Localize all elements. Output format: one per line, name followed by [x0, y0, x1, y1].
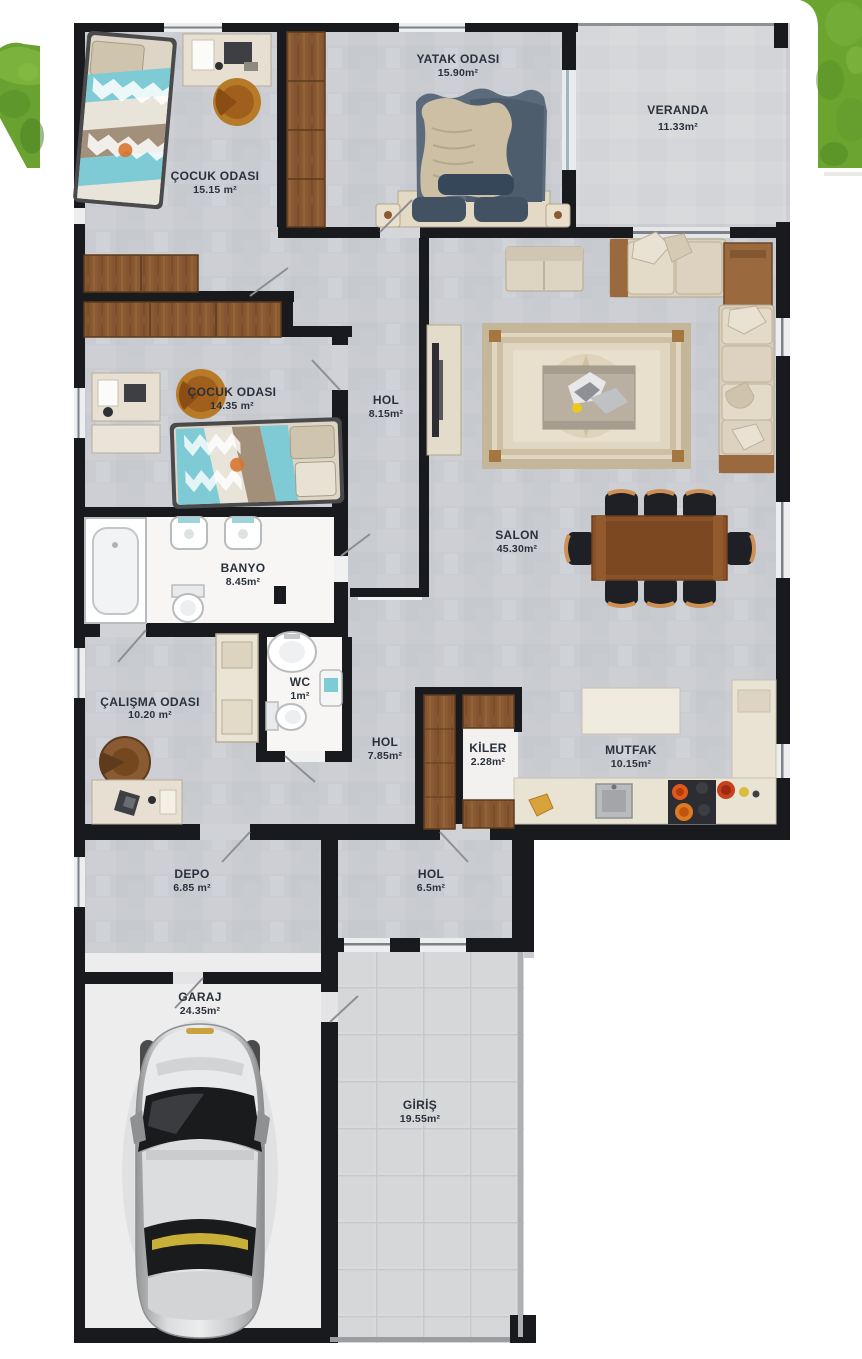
svg-text:HOL: HOL: [372, 735, 398, 749]
svg-text:ÇOCUK ODASI: ÇOCUK ODASI: [171, 169, 260, 183]
svg-text:HOL: HOL: [418, 867, 444, 881]
svg-text:WC: WC: [290, 675, 311, 689]
svg-text:6.5m²: 6.5m²: [417, 882, 446, 894]
svg-text:SALON: SALON: [495, 528, 539, 542]
svg-text:14.35 m²: 14.35 m²: [210, 400, 254, 412]
svg-text:DEPO: DEPO: [174, 867, 209, 881]
svg-text:15.90m²: 15.90m²: [438, 67, 479, 79]
svg-text:10.20 m²: 10.20 m²: [128, 709, 172, 721]
svg-text:KİLER: KİLER: [469, 740, 507, 755]
svg-text:15.15 m²: 15.15 m²: [193, 184, 237, 196]
svg-text:6.85 m²: 6.85 m²: [173, 882, 211, 894]
svg-text:8.15m²: 8.15m²: [369, 408, 404, 420]
svg-text:MUTFAK: MUTFAK: [605, 743, 657, 757]
svg-text:8.45m²: 8.45m²: [226, 576, 261, 588]
svg-text:BANYO: BANYO: [221, 561, 266, 575]
svg-text:ÇALIŞMA ODASI: ÇALIŞMA ODASI: [100, 695, 199, 709]
svg-text:VERANDA: VERANDA: [647, 103, 708, 117]
svg-text:HOL: HOL: [373, 393, 399, 407]
svg-text:1m²: 1m²: [290, 690, 310, 702]
svg-text:GARAJ: GARAJ: [178, 990, 222, 1004]
svg-text:10.15m²: 10.15m²: [611, 758, 652, 770]
svg-text:24.35m²: 24.35m²: [180, 1005, 221, 1017]
svg-text:45.30m²: 45.30m²: [497, 543, 538, 555]
svg-text:YATAK ODASI: YATAK ODASI: [416, 52, 499, 66]
svg-text:GİRİŞ: GİRİŞ: [403, 1097, 437, 1112]
svg-text:11.33m²: 11.33m²: [658, 121, 698, 133]
svg-text:ÇOCUK ODASI: ÇOCUK ODASI: [188, 385, 277, 399]
svg-text:7.85m²: 7.85m²: [368, 750, 403, 762]
svg-text:2.28m²: 2.28m²: [471, 756, 506, 768]
svg-text:19.55m²: 19.55m²: [400, 1113, 441, 1125]
